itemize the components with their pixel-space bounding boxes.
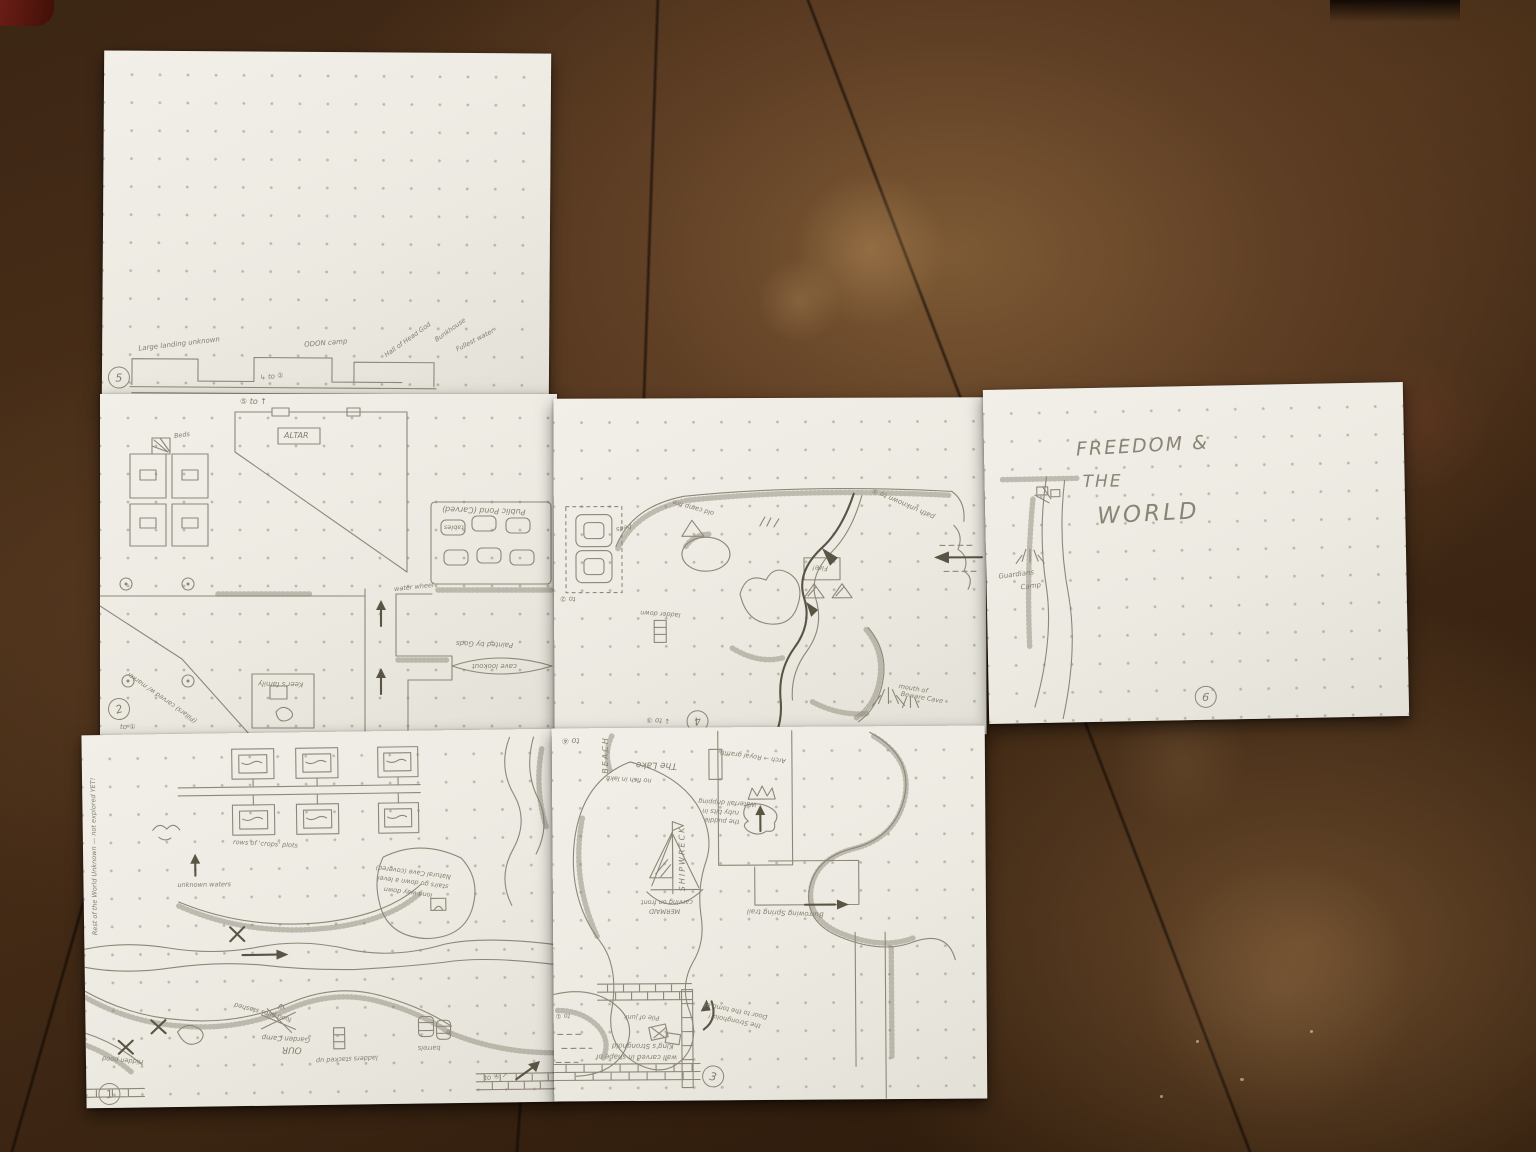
label-pile-of-junk: Pile of junk xyxy=(624,1013,660,1020)
map-page-2: ⑤ to ↑ Beds ALTAR Public Pond (Carved) t… xyxy=(100,394,557,735)
title-the: THE xyxy=(1082,471,1122,492)
map-page-6: FREEDOM & THE WORLD Guardians Camp 6 xyxy=(983,382,1409,724)
paint-speck xyxy=(1160,1095,1163,1098)
map-page-4: old camp fire beds Fire! path unknown to… xyxy=(553,397,986,736)
label-no-fish: no fish in lake xyxy=(606,775,652,784)
label-public-pond: Public Pond (Carved) xyxy=(442,505,526,516)
label-wall-carved-2: King's Stronghold xyxy=(612,1042,674,1050)
label-our-camp-1: OUR xyxy=(282,1044,302,1053)
link-to-page-1: to ① xyxy=(556,1012,570,1019)
label-keers-family: Keer's family xyxy=(258,680,303,688)
photo-of-map-pages-on-table: Large landing unknown ODON camp Hall of … xyxy=(0,0,1536,1152)
label-tables: tables xyxy=(444,524,464,531)
map-page-3: to ④ BEACH The Lake no fish in lake SHIP… xyxy=(552,725,988,1101)
label-altar: ALTAR xyxy=(284,432,309,440)
label-waterfall-2: ruby bits in xyxy=(702,807,739,816)
red-object-corner xyxy=(0,0,54,26)
label-barrels: barrels xyxy=(418,1044,441,1051)
label-shipwreck: SHIPWRECK xyxy=(678,826,686,892)
label-the-lake: The Lake xyxy=(636,759,677,769)
label-waterfall-3: the puddle xyxy=(704,816,739,825)
paint-speck xyxy=(1196,1040,1199,1043)
label-beach: BEACH xyxy=(602,736,610,774)
label-fire: Fire! xyxy=(812,563,828,571)
label-unknown-waters: unknown waters xyxy=(177,881,231,888)
link-to-page-1: to ① xyxy=(120,724,136,731)
paint-speck xyxy=(1310,1030,1313,1033)
label-wall-carved-1: wall carved in shape of xyxy=(596,1053,677,1061)
shadow-corner xyxy=(1330,0,1460,22)
label-ladder-down: ladder down xyxy=(640,609,681,618)
link-to-page-5: ⑤ to ↑ xyxy=(240,398,267,406)
paint-speck xyxy=(1240,1078,1244,1081)
link-to-page-4: to ④ xyxy=(562,736,580,744)
label-cave-lookout: cave lookout xyxy=(472,662,517,669)
table-plank-seam xyxy=(641,0,661,420)
label-mermaid-2: carving on front xyxy=(641,899,693,906)
label-our-camp-2: Garden Camp xyxy=(262,1033,311,1043)
sheet2-sketch xyxy=(100,394,557,735)
table-plank-seam xyxy=(0,886,90,1152)
label-mermaid-1: MERMAID xyxy=(649,908,680,915)
label-painted-by-gods: Painted by Gods xyxy=(456,639,513,648)
title-world: WORLD xyxy=(1097,498,1201,529)
link-to-page-3: ↓ to ③ xyxy=(646,716,670,725)
sheet1-sketch xyxy=(81,729,558,1109)
link-to-page-2: to ② xyxy=(560,594,576,601)
map-page-1: Rest of the World Unknown — not explored… xyxy=(81,729,558,1109)
map-page-5: Large landing unknown ODON camp Hall of … xyxy=(102,50,551,401)
page-number-5: 5 xyxy=(108,366,130,388)
